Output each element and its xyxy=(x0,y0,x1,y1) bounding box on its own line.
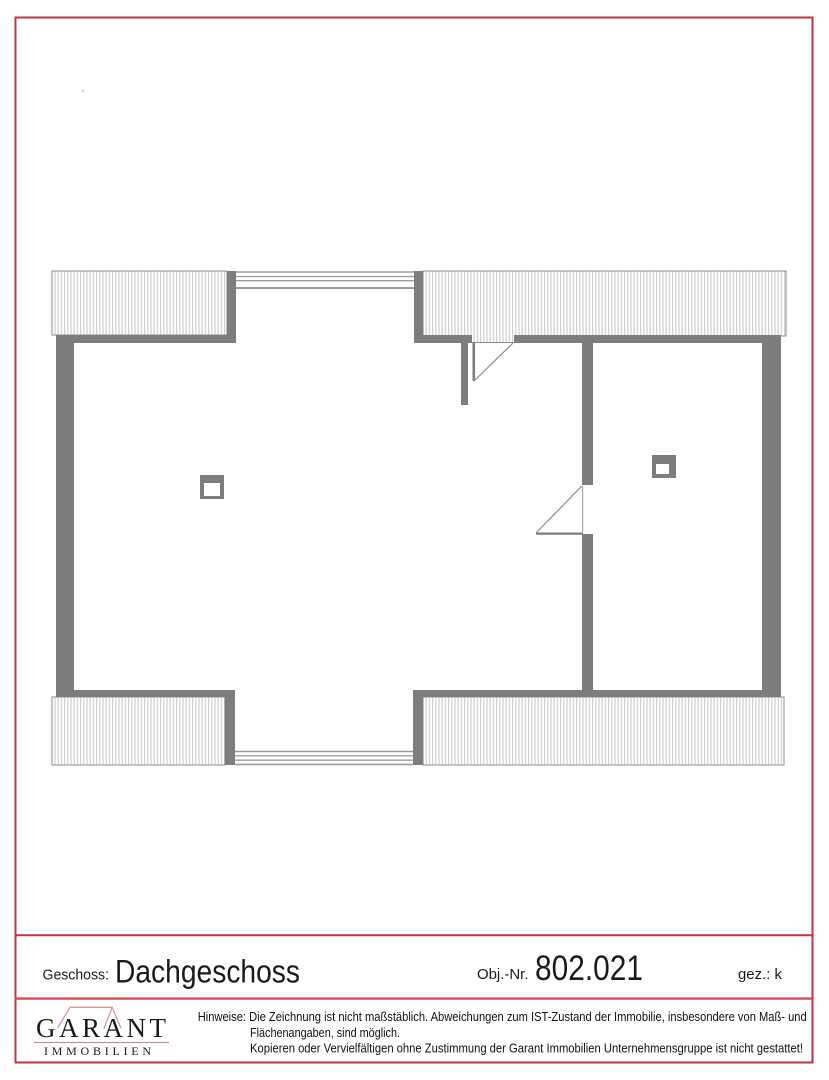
svg-text:IMMOBILIEN: IMMOBILIEN xyxy=(44,1044,151,1058)
svg-text:gez.: k: gez.: k xyxy=(738,966,782,983)
svg-text:802.021: 802.021 xyxy=(535,949,643,988)
svg-text:Geschoss:: Geschoss: xyxy=(43,967,110,984)
svg-text:Dachgeschoss: Dachgeschoss xyxy=(115,954,300,990)
svg-text:Hinweise: Die Zeichnung ist ni: Hinweise: Die Zeichnung ist nicht maßstä… xyxy=(198,1009,807,1024)
svg-text:Obj.-Nr.: Obj.-Nr. xyxy=(477,966,529,983)
svg-text:Kopieren oder Vervielfältigen: Kopieren oder Vervielfältigen ohne Zusti… xyxy=(250,1041,803,1056)
svg-text:Flächenangaben, sind möglich.: Flächenangaben, sind möglich. xyxy=(250,1025,400,1040)
svg-text:GARANT: GARANT xyxy=(36,1013,167,1043)
